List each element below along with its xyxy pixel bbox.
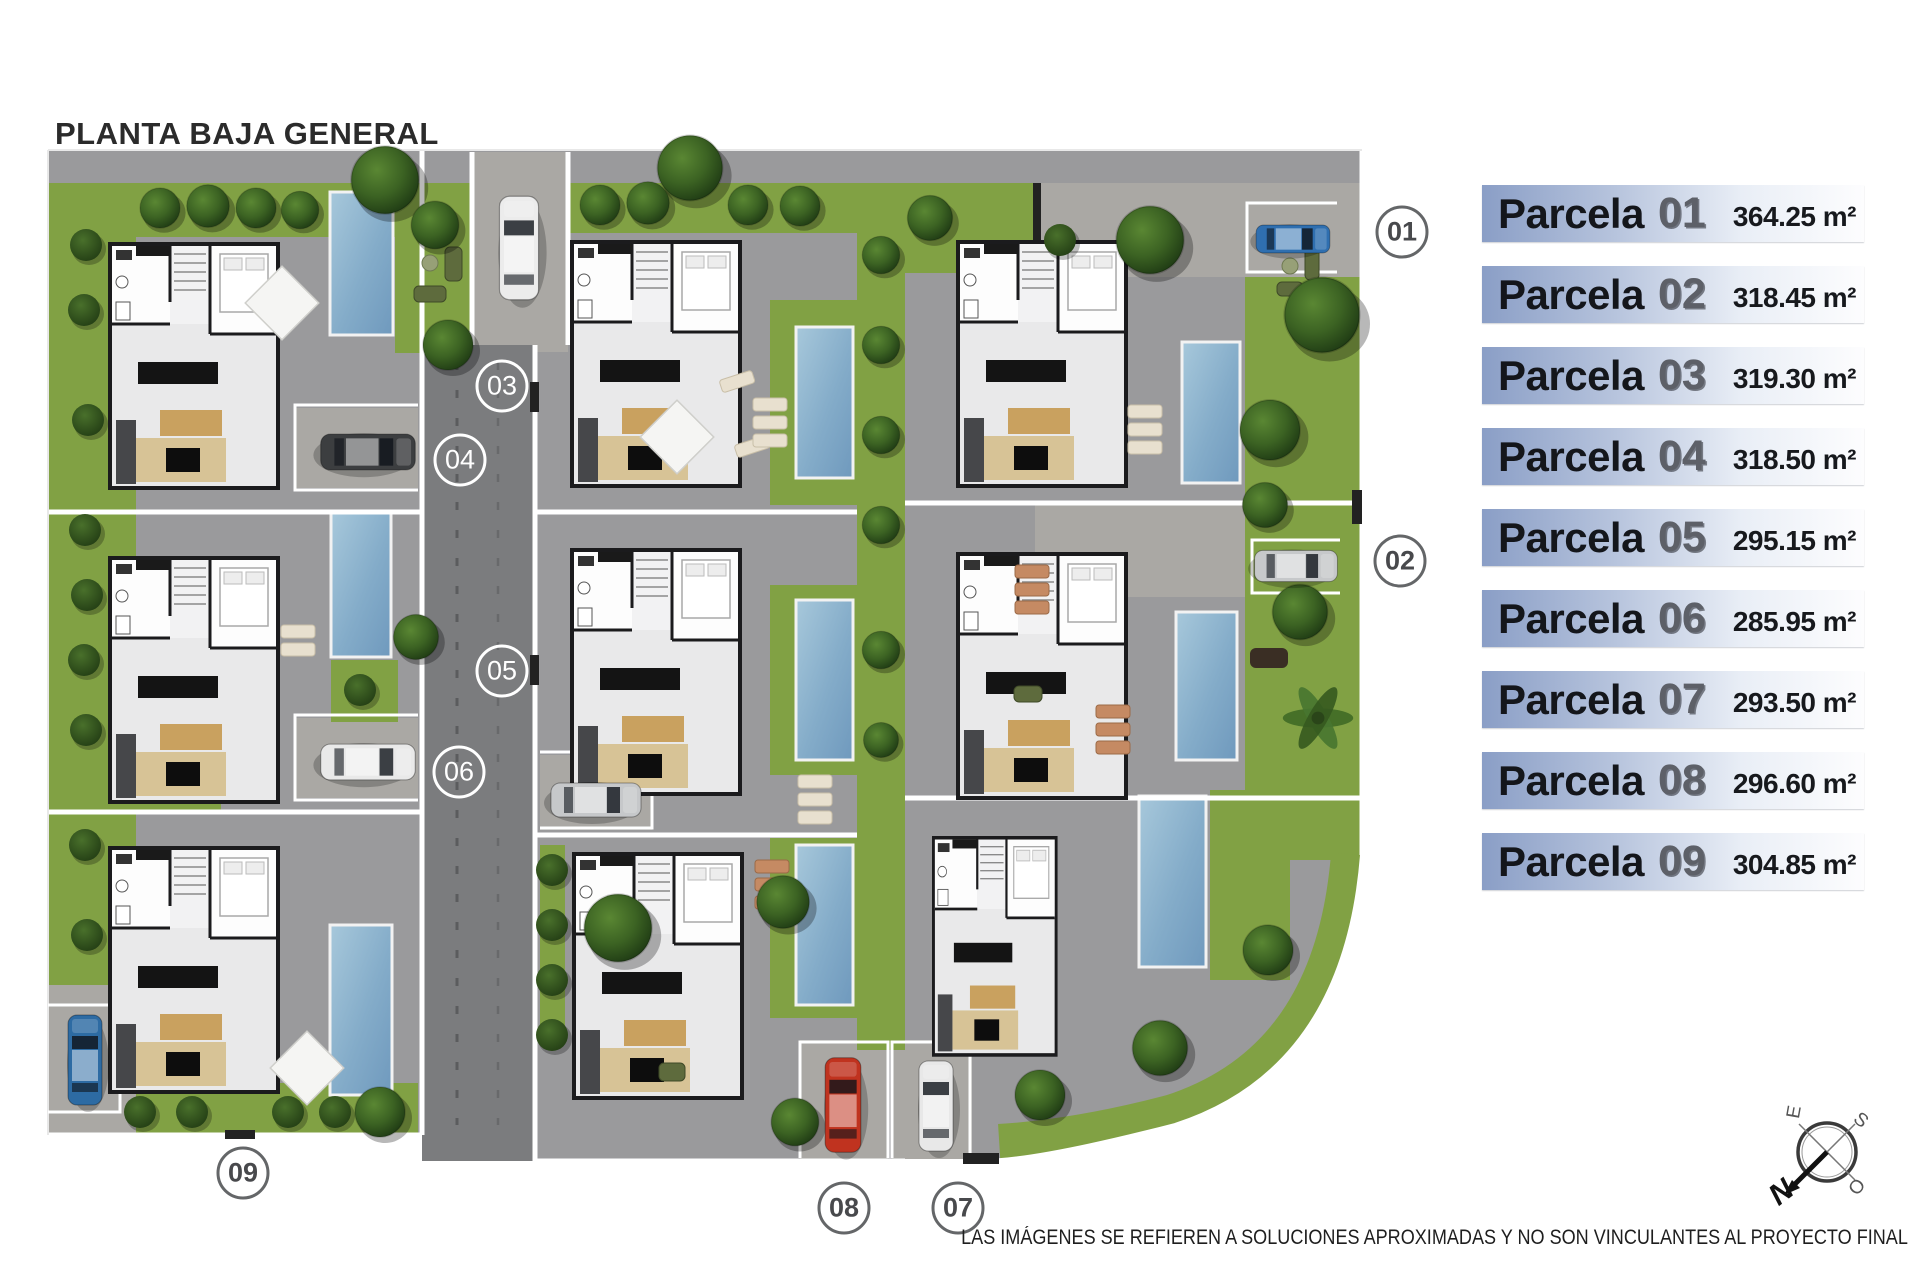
legend-parcel-number: 03 — [1658, 351, 1706, 400]
legend-row-parcela-07: Parcela 07 293.50 m² — [1482, 671, 1864, 728]
legend-parcel-name: Parcela — [1498, 595, 1644, 643]
legend-row-parcela-09: Parcela 09 304.85 m² — [1482, 833, 1864, 890]
plot-marker-09: 09 — [217, 1147, 270, 1200]
legend-parcel-number: 05 — [1658, 513, 1706, 562]
legend-parcel-name: Parcela — [1498, 352, 1644, 400]
house-parcela-05 — [572, 550, 740, 794]
compass-south-label: S — [1849, 1108, 1872, 1132]
legend-parcel-name: Parcela — [1498, 838, 1644, 886]
legend-parcel-name: Parcela — [1498, 514, 1644, 562]
compass-west-label: O — [1845, 1175, 1871, 1200]
legend-row-parcela-02: Parcela 02 318.45 m² — [1482, 266, 1864, 323]
plot-marker-02: 02 — [1374, 535, 1427, 588]
parcel-legend: Parcela 01 364.25 m² Parcela 02 318.45 m… — [1482, 185, 1864, 914]
legend-parcel-name: Parcela — [1498, 271, 1644, 319]
legend-parcel-area: 296.60 m² — [1733, 762, 1856, 800]
legend-row-parcela-08: Parcela 08 296.60 m² — [1482, 752, 1864, 809]
legend-parcel-number: 06 — [1658, 594, 1706, 643]
legend-row-parcela-06: Parcela 06 285.95 m² — [1482, 590, 1864, 647]
legend-parcel-name: Parcela — [1498, 190, 1644, 238]
house-parcela-08 — [574, 854, 742, 1098]
plot-marker-01: 01 — [1376, 206, 1429, 259]
compass-rose: E S O N — [1763, 1104, 1873, 1212]
legend-parcel-number: 01 — [1658, 189, 1706, 238]
house-parcela-04 — [110, 244, 278, 488]
legend-parcel-name: Parcela — [1498, 676, 1644, 724]
house-parcela-07 — [933, 838, 1056, 1055]
plot-marker-05: 05 — [476, 645, 529, 698]
legend-parcel-area: 295.15 m² — [1733, 519, 1856, 557]
legend-parcel-area: 318.50 m² — [1733, 438, 1856, 476]
house-parcela-01 — [958, 242, 1126, 486]
legend-parcel-area: 304.85 m² — [1733, 843, 1856, 881]
plot-marker-08: 08 — [818, 1182, 871, 1235]
plot-marker-06: 06 — [433, 746, 486, 799]
legend-row-parcela-03: Parcela 03 319.30 m² — [1482, 347, 1864, 404]
houses — [110, 242, 1126, 1098]
house-parcela-06 — [110, 558, 278, 802]
disclaimer-text: LAS IMÁGENES SE REFIEREN A SOLUCIONES AP… — [961, 1226, 1908, 1250]
legend-row-parcela-01: Parcela 01 364.25 m² — [1482, 185, 1864, 242]
legend-parcel-area: 319.30 m² — [1733, 357, 1856, 395]
compass-east-label: E — [1783, 1104, 1806, 1120]
plot-marker-03: 03 — [476, 360, 529, 413]
compass-north-label: N — [1763, 1172, 1801, 1212]
legend-parcel-number: 07 — [1658, 675, 1706, 724]
legend-parcel-name: Parcela — [1498, 757, 1644, 805]
legend-parcel-name: Parcela — [1498, 433, 1644, 481]
plot-marker-04: 04 — [434, 434, 487, 487]
legend-parcel-area: 318.45 m² — [1733, 276, 1856, 314]
legend-parcel-number: 04 — [1658, 432, 1706, 481]
legend-parcel-number: 02 — [1658, 270, 1706, 319]
site-plan-page: PLANTA BAJA GENERAL — [0, 0, 1920, 1280]
legend-parcel-area: 364.25 m² — [1733, 195, 1856, 233]
legend-row-parcela-05: Parcela 05 295.15 m² — [1482, 509, 1864, 566]
legend-parcel-number: 09 — [1658, 837, 1706, 886]
legend-parcel-area: 285.95 m² — [1733, 600, 1856, 638]
house-parcela-09 — [110, 848, 278, 1092]
legend-row-parcela-04: Parcela 04 318.50 m² — [1482, 428, 1864, 485]
legend-parcel-area: 293.50 m² — [1733, 681, 1856, 719]
legend-parcel-number: 08 — [1658, 756, 1706, 805]
